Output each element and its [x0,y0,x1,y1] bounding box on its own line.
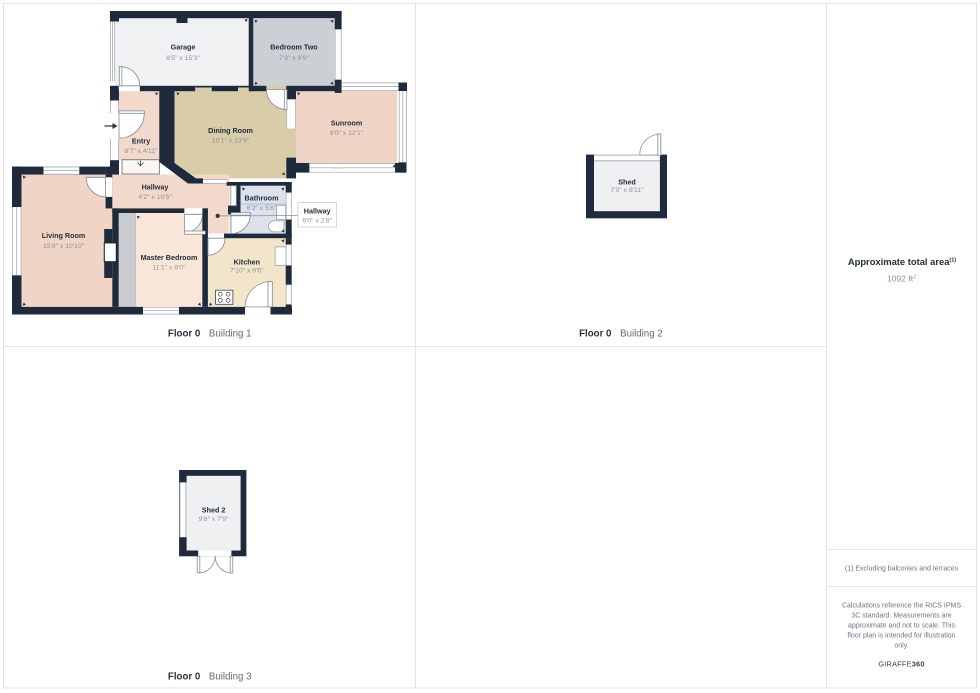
svg-text:4'2" x 10'5": 4'2" x 10'5" [138,194,172,201]
svg-text:Kitchen: Kitchen [234,257,260,266]
svg-text:Entry: Entry [132,137,150,146]
svg-text:Shed 2: Shed 2 [202,505,226,514]
svg-text:3C standard. Measurements are: 3C standard. Measurements are [851,613,951,620]
svg-text:(1) Excluding balconies and te: (1) Excluding balconies and terraces [845,566,959,573]
svg-text:9'8" x 7'9": 9'8" x 7'9" [199,516,229,523]
svg-text:Calculations reference the RIC: Calculations reference the RICS IPMS [842,603,961,610]
svg-text:only.: only. [894,643,908,650]
svg-text:Master Bedroom: Master Bedroom [141,253,198,262]
svg-text:7'0" x 8'11": 7'0" x 8'11" [611,187,645,194]
svg-text:7'10" x 9'6": 7'10" x 9'6" [230,268,264,275]
svg-text:Bathroom: Bathroom [245,194,279,203]
svg-text:Floor 0 Building 2: Floor 0 Building 2 [579,329,663,340]
svg-text:Garage: Garage [171,43,196,52]
svg-text:1092 ft2: 1092 ft2 [887,274,916,284]
svg-text:Shed: Shed [618,178,636,187]
svg-text:Floor 0 Building 1: Floor 0 Building 1 [168,329,252,340]
svg-text:Approximate total area(1): Approximate total area(1) [848,256,956,267]
svg-text:Hallway: Hallway [142,183,169,192]
svg-text:Hallway: Hallway [304,206,331,215]
svg-text:9'0" x 12'1": 9'0" x 12'1" [330,130,364,137]
svg-text:Dining Room: Dining Room [208,126,253,135]
svg-text:8'7" x 4'11": 8'7" x 4'11" [125,148,159,155]
svg-text:Sunroom: Sunroom [331,118,363,127]
svg-text:approximate and not to scale.: approximate and not to scale. This [848,623,955,630]
svg-text:GIRAFFE360: GIRAFFE360 [878,660,924,669]
svg-text:Bedroom Two: Bedroom Two [270,43,318,52]
svg-text:10'1" x 13'9": 10'1" x 13'9" [212,137,250,144]
svg-text:11'1" x 8'0": 11'1" x 8'0" [153,264,187,271]
svg-text:15'8" x 10'10": 15'8" x 10'10" [43,243,85,250]
svg-text:6'2" x 5'6": 6'2" x 5'6" [247,205,277,212]
svg-text:floor plan is intended for ill: floor plan is intended for illustration [847,633,955,640]
svg-text:Floor 0 Building 3: Floor 0 Building 3 [168,672,252,683]
svg-text:Living Room: Living Room [42,231,86,240]
svg-text:6'0" x 2'8": 6'0" x 2'8" [302,218,332,225]
svg-text:8'5" x 15'3": 8'5" x 15'3" [166,55,200,62]
svg-text:7'9" x 9'9": 7'9" x 9'9" [279,55,309,62]
